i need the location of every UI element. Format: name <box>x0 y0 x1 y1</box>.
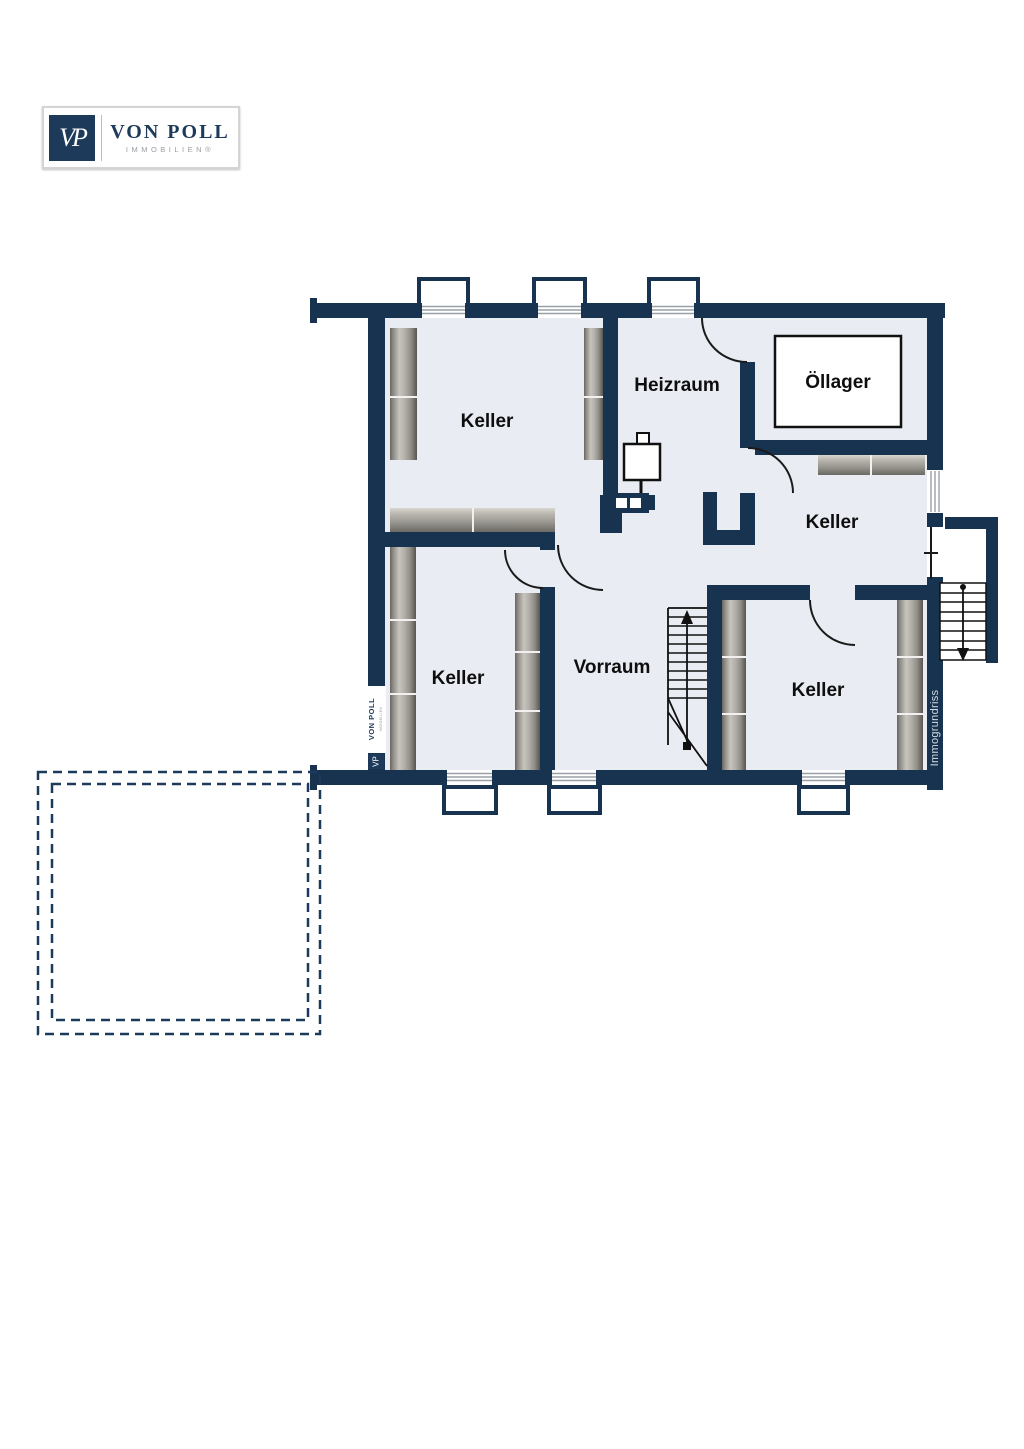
wall-keller-heizraum <box>603 318 618 510</box>
window <box>444 770 496 813</box>
wall-keller-nw-bottom <box>368 532 555 547</box>
room-label-keller-e: Keller <box>806 512 859 533</box>
window-right <box>927 470 943 513</box>
wall-keller-se-top-left <box>707 585 810 600</box>
room-label-oellager: Öllager <box>805 372 871 393</box>
window <box>649 279 698 318</box>
wall-corridor-top <box>703 530 755 545</box>
room-label-keller-sw: Keller <box>432 668 485 689</box>
room-label-vorraum: Vorraum <box>574 657 651 678</box>
logo-monogram: VP <box>49 115 95 161</box>
wall-logo-watermark: VON POLL IMMOBILIEN VP <box>366 686 386 769</box>
wall-vorraum-left <box>540 587 555 770</box>
logo-subtitle: IMMOBILIEN® <box>102 146 238 154</box>
wall-bottom <box>313 770 943 785</box>
logo-wordmark: VON POLL IMMOBILIEN® <box>102 122 238 154</box>
floor-plan: Keller Heizraum Öllager Keller Keller Vo… <box>0 0 1024 1449</box>
exterior-stairs <box>940 517 998 663</box>
window <box>549 770 600 813</box>
window <box>419 279 468 318</box>
windows-top <box>419 279 698 318</box>
wall-oellager-bottom <box>755 440 927 455</box>
dashed-outline <box>38 772 320 1034</box>
shelf-unit <box>515 593 540 770</box>
shelf-unit <box>390 547 416 770</box>
wall-heizraum-oellager <box>740 362 755 448</box>
window <box>799 770 848 813</box>
wall-logo-monogram: VP <box>372 756 381 767</box>
wall-heizraum-keller-e <box>740 493 755 530</box>
wall-logo-sub: IMMOBILIEN <box>379 707 383 732</box>
wall-top-end-cap <box>310 298 317 323</box>
wall-logo-name: VON POLL <box>367 698 376 740</box>
brand-watermark: Immogrundriss <box>929 689 941 766</box>
wall-right-upper <box>927 303 943 470</box>
wall-top <box>313 303 945 318</box>
wall-right-mid <box>927 513 943 527</box>
room-label-keller-se: Keller <box>792 680 845 701</box>
wall-vorraum-right <box>707 585 722 770</box>
wall-bottom-end-cap <box>310 765 317 790</box>
logo-name: VON POLL <box>102 122 238 142</box>
shelf-unit <box>584 328 603 460</box>
shelf-unit <box>897 600 923 770</box>
shelf-unit <box>722 600 746 770</box>
shelf-unit <box>390 328 417 460</box>
wall-vorraum-left-top <box>540 532 555 550</box>
window <box>534 279 585 318</box>
wall-keller-se-top-right <box>855 585 927 600</box>
vonpoll-logo: VP VON POLL IMMOBILIEN® <box>42 106 240 169</box>
room-label-heizraum: Heizraum <box>634 375 720 396</box>
page: VP VON POLL IMMOBILIEN® <box>0 0 1024 1449</box>
room-label-keller-nw: Keller <box>461 411 514 432</box>
